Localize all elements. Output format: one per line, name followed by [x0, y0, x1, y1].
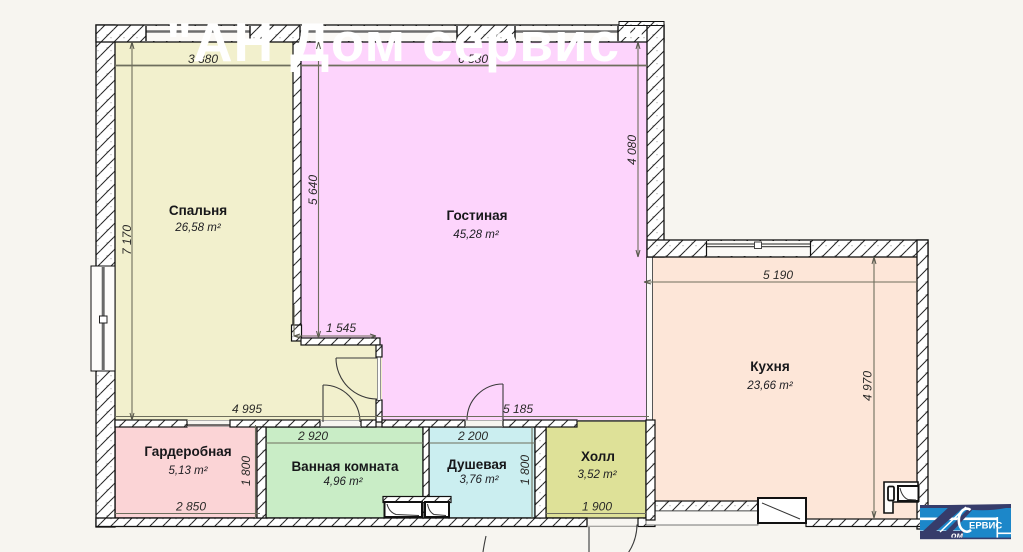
svg-text:45,28 m²: 45,28 m²: [453, 229, 500, 241]
svg-text:5,13 m²: 5,13 m²: [169, 465, 209, 477]
svg-text:Спальня: Спальня: [169, 203, 227, 218]
svg-text:23,66 m²: 23,66 m²: [746, 380, 794, 392]
svg-text:Гардеробная: Гардеробная: [144, 444, 231, 459]
svg-text:4 995: 4 995: [232, 402, 262, 416]
svg-text:Гостиная: Гостиная: [446, 208, 507, 223]
svg-text:Ванная комната: Ванная комната: [291, 459, 399, 474]
svg-text:"АН Дом сервис": "АН Дом сервис": [166, 11, 646, 73]
svg-text:Душевая: Душевая: [447, 457, 507, 472]
svg-text:4 080: 4 080: [625, 135, 639, 165]
svg-text:4,96 m²: 4,96 m²: [324, 476, 364, 488]
svg-text:1 800: 1 800: [239, 456, 253, 486]
svg-text:1 545: 1 545: [326, 321, 356, 335]
svg-text:1 800: 1 800: [518, 455, 532, 485]
svg-text:5 640: 5 640: [306, 175, 320, 205]
svg-text:2 850: 2 850: [175, 500, 206, 514]
svg-text:5 185: 5 185: [503, 402, 533, 416]
svg-text:Холл: Холл: [581, 449, 615, 464]
svg-text:5 190: 5 190: [763, 268, 793, 282]
svg-text:3,52 m²: 3,52 m²: [578, 469, 618, 481]
svg-text:1 900: 1 900: [582, 500, 612, 514]
svg-text:2 920: 2 920: [297, 429, 328, 443]
svg-text:3,76 m²: 3,76 m²: [460, 474, 500, 486]
svg-text:2 200: 2 200: [457, 429, 488, 443]
svg-text:Кухня: Кухня: [750, 359, 789, 374]
svg-text:4 970: 4 970: [861, 371, 875, 401]
svg-text:7 170: 7 170: [120, 225, 134, 255]
svg-text:26,58 m²: 26,58 m²: [174, 222, 222, 234]
